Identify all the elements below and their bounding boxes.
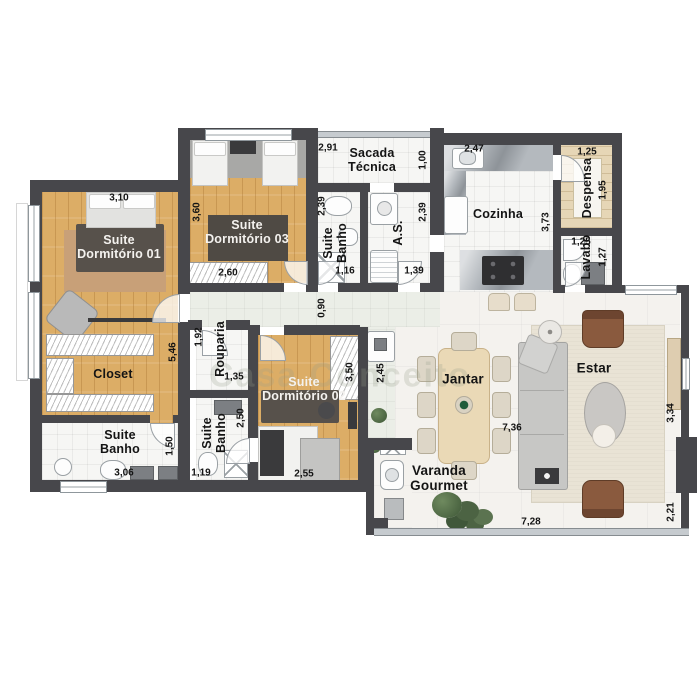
- plant-icon: [371, 408, 387, 423]
- tv-suite02: [348, 402, 357, 429]
- window-sill: [16, 203, 28, 381]
- desk-chair-icon: [318, 402, 335, 419]
- floor-plan: Casa Conceito Suite Dormitório 01 Closet…: [0, 0, 700, 700]
- dining-chair-icon: [417, 392, 436, 418]
- dim-sacada-height: 1,00: [418, 150, 429, 169]
- room-label-rouparia: Rouparia: [213, 321, 227, 377]
- window: [60, 481, 107, 493]
- dining-chair-icon: [492, 392, 511, 418]
- wall: [30, 180, 185, 192]
- dim-as-height: 2,39: [418, 202, 429, 221]
- sink-icon: [324, 196, 352, 216]
- wall: [178, 283, 284, 292]
- dim-suite02-width: 2,55: [294, 469, 313, 480]
- wall: [360, 192, 368, 283]
- wall: [612, 133, 622, 293]
- dim-cozinha-width: 2,47: [464, 144, 483, 155]
- room-label-cozinha: Cozinha: [473, 207, 523, 221]
- dim-banho03-height: 2,39: [317, 196, 328, 215]
- dining-chair-icon: [492, 356, 511, 382]
- wall: [681, 293, 689, 535]
- speaker-icon: [535, 468, 559, 484]
- room-label-suite03: Suite Dormitório 03: [205, 218, 289, 246]
- cooler-icon: [384, 498, 404, 520]
- wall: [675, 285, 689, 293]
- armchair-icon: [582, 310, 624, 348]
- varanda-basin-icon: [385, 468, 399, 482]
- nightstand-icon: [230, 140, 256, 154]
- floor-lamp-icon: [538, 320, 562, 344]
- fridge-icon: [444, 196, 468, 234]
- dim-banho01-height: 1,50: [165, 436, 176, 455]
- dim-as-width: 1,39: [404, 266, 423, 277]
- dim-banho02-height: 2,50: [236, 408, 247, 427]
- dim-varanda-width: 7,28: [521, 517, 540, 528]
- room-label-estar: Estar: [577, 360, 612, 375]
- wall: [585, 285, 625, 293]
- railing-varanda: [374, 528, 689, 536]
- window: [28, 292, 40, 379]
- dim-despensa-width: 1,25: [577, 147, 596, 158]
- bush-plant-icon: [432, 492, 462, 518]
- room-label-banho01: Suite Banho: [100, 428, 140, 456]
- wall: [306, 183, 370, 192]
- room-label-suite02: Suite Dormitório 02: [262, 375, 346, 403]
- dim-varanda-height: 2,21: [666, 502, 677, 521]
- dim-hall-width: 0,90: [317, 298, 328, 317]
- pillow-icon: [194, 142, 226, 156]
- tv-console-estar: [667, 338, 681, 410]
- dim-lavabo-height: 1,27: [598, 247, 609, 266]
- dim-living-width: 7,36: [502, 423, 521, 434]
- dim-banho01-width: 3,06: [114, 468, 133, 479]
- dim-sacada-width: 2,91: [318, 143, 337, 154]
- wall: [226, 320, 250, 330]
- shower-icon: [54, 458, 72, 476]
- dim-banho02-width: 1,19: [191, 468, 210, 479]
- dim-lavabo-width: 1,25: [571, 237, 590, 248]
- room-label-as: A.S.: [391, 220, 405, 245]
- dim-estar-height: 3,34: [666, 403, 677, 422]
- room-label-banho02: Suite Banho: [200, 413, 228, 453]
- washer-drum-icon: [377, 201, 392, 216]
- wall: [553, 285, 565, 293]
- dim-suite01-height: 5,46: [168, 342, 179, 361]
- room-label-banho03: Suite Banho: [321, 223, 349, 263]
- bar-stool-icon: [488, 293, 510, 311]
- closet-shelf-icon: [46, 394, 154, 412]
- dim-rouparia-width: 1,35: [224, 372, 243, 383]
- stove-icon: [482, 256, 524, 285]
- wall: [338, 283, 398, 292]
- room-label-varanda: Varanda Gourmet: [410, 463, 468, 493]
- window: [682, 358, 690, 390]
- dim-suite03-height: 3,60: [192, 202, 203, 221]
- wall: [366, 438, 412, 450]
- dining-chair-icon: [417, 428, 436, 454]
- dim-banho03-width: 1,16: [335, 266, 354, 277]
- wall: [553, 145, 561, 155]
- armchair-icon: [582, 480, 624, 518]
- window: [28, 205, 40, 282]
- window: [625, 285, 677, 295]
- bar-stool-icon: [514, 293, 536, 311]
- sofa-cushion-line: [520, 390, 564, 391]
- column: [676, 437, 697, 493]
- railing-sacada: [318, 131, 430, 138]
- blanket-icon: [260, 430, 284, 476]
- dining-chair-icon: [451, 332, 477, 351]
- wall: [173, 415, 190, 423]
- room-label-closet: Closet: [93, 367, 132, 381]
- room-label-sacada: Sacada Técnica: [348, 146, 396, 174]
- dim-cozinha-height: 3,73: [541, 212, 552, 231]
- dim-rouparia-height: 1,92: [194, 327, 205, 346]
- wall: [430, 252, 444, 292]
- wall: [178, 322, 190, 480]
- side-table-round: [592, 424, 616, 448]
- closet-shelf-icon: [46, 334, 154, 356]
- wall: [42, 415, 150, 423]
- sofa-cushion-line: [520, 434, 564, 435]
- window: [205, 129, 292, 141]
- dim-suite02-height: 3,50: [345, 362, 356, 381]
- room-label-despensa: Despensa: [580, 158, 594, 219]
- dim-despensa-height: 1,95: [598, 180, 609, 199]
- room-label-suite01: Suite Dormitório 01: [77, 233, 161, 261]
- laundry-cabinet-icon: [370, 250, 398, 283]
- wall: [366, 450, 374, 528]
- wall: [284, 325, 360, 335]
- wall: [178, 128, 190, 294]
- wall: [248, 462, 258, 480]
- closet-shelf-icon: [46, 358, 74, 394]
- dim-corridor-height: 2,45: [376, 363, 387, 382]
- utility-icon: [374, 338, 387, 351]
- centerpiece-icon: [455, 396, 473, 414]
- sink-icon: [158, 466, 178, 480]
- room-label-jantar: Jantar: [442, 371, 484, 386]
- dim-suite03-wardrobe: 2,60: [218, 268, 237, 279]
- pillow-icon: [264, 142, 296, 156]
- dim-suite01-width: 3,10: [109, 193, 128, 204]
